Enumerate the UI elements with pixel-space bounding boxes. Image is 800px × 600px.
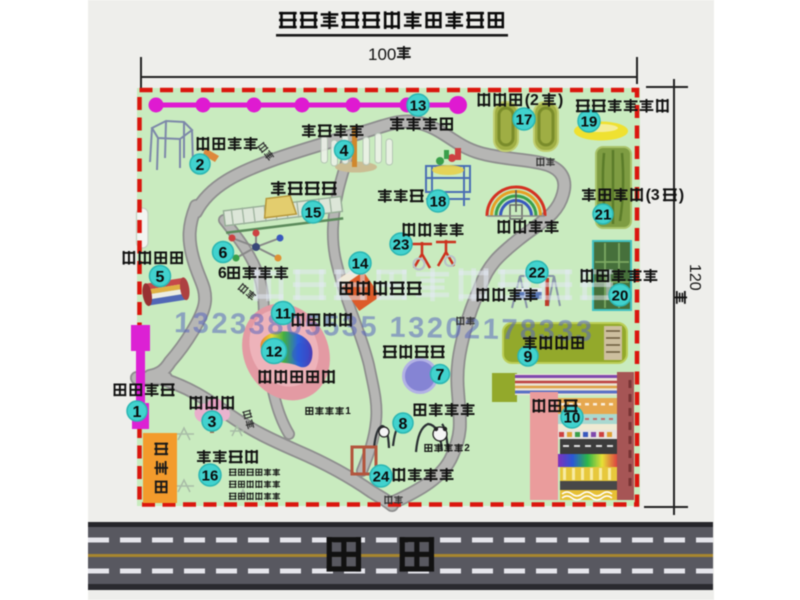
svg-text:20: 20: [612, 287, 629, 304]
svg-text:4: 4: [340, 143, 349, 160]
svg-text:6: 6: [219, 245, 228, 262]
svg-text:6: 6: [218, 265, 227, 282]
svg-text:16: 16: [202, 467, 219, 484]
svg-text:): ): [558, 92, 563, 109]
svg-text:120: 120: [686, 264, 703, 291]
svg-text:(3: (3: [646, 187, 660, 204]
svg-text:7: 7: [436, 367, 445, 384]
svg-text:9: 9: [524, 349, 533, 366]
svg-text:23: 23: [393, 236, 410, 253]
svg-text:14: 14: [352, 255, 369, 272]
svg-text:22: 22: [529, 264, 546, 281]
svg-text:13: 13: [410, 97, 427, 114]
svg-text:5: 5: [156, 269, 165, 286]
svg-text:): ): [679, 187, 684, 204]
svg-text:21: 21: [595, 206, 612, 223]
svg-text:11: 11: [275, 305, 291, 322]
svg-text:2: 2: [464, 443, 470, 454]
svg-text:18: 18: [430, 193, 447, 210]
svg-text:2: 2: [196, 157, 205, 174]
svg-text:12: 12: [266, 343, 283, 360]
svg-text:15: 15: [305, 204, 322, 221]
svg-text:24: 24: [373, 468, 390, 485]
svg-text:1: 1: [133, 404, 142, 421]
svg-text:100: 100: [368, 45, 396, 64]
svg-text:1: 1: [345, 406, 351, 417]
svg-text:19: 19: [581, 113, 598, 130]
svg-text:(2: (2: [525, 92, 539, 109]
svg-text:8: 8: [399, 416, 408, 433]
svg-text:17: 17: [516, 111, 533, 128]
svg-text:3: 3: [208, 414, 217, 431]
